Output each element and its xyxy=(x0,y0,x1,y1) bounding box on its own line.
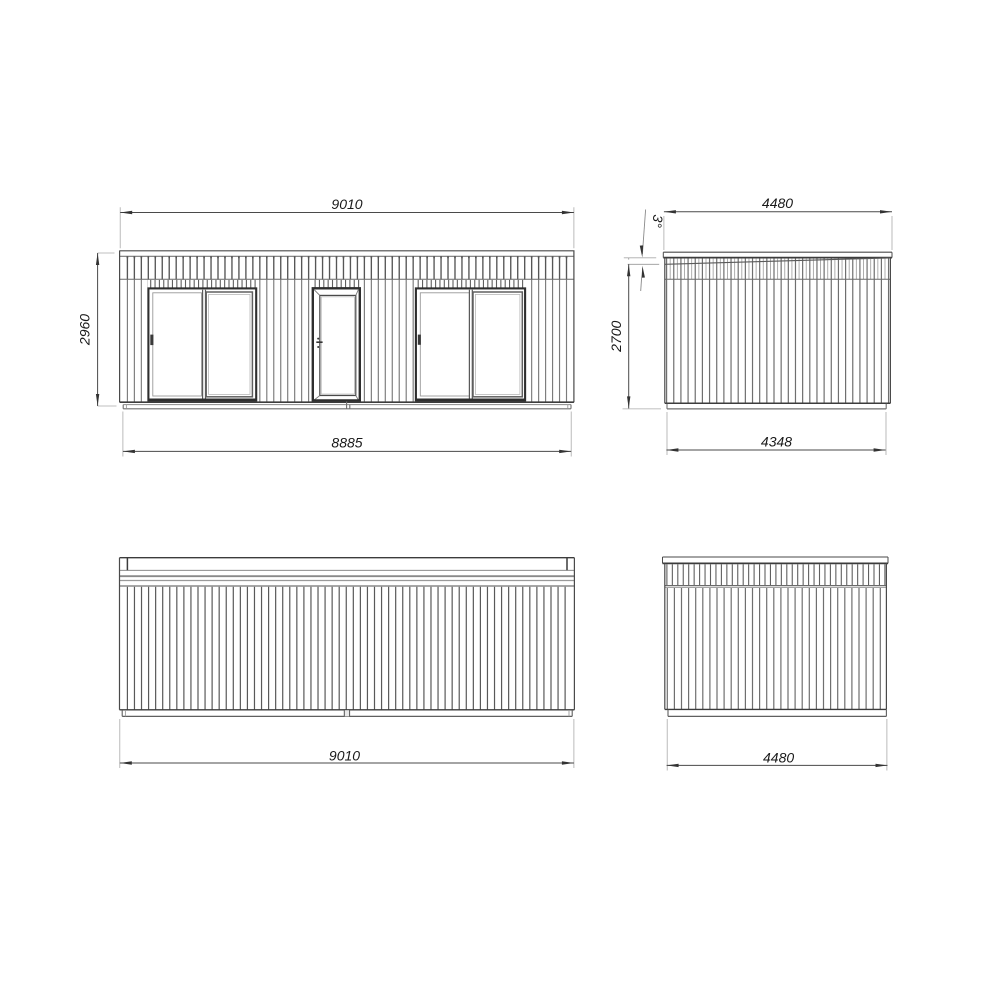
svg-text:4480: 4480 xyxy=(762,195,793,211)
svg-text:8885: 8885 xyxy=(331,435,362,451)
svg-text:2960: 2960 xyxy=(77,314,93,346)
svg-text:9010: 9010 xyxy=(331,196,362,212)
svg-text:4348: 4348 xyxy=(761,434,792,450)
svg-text:2700: 2700 xyxy=(608,321,624,353)
svg-text:3°: 3° xyxy=(649,214,666,229)
svg-text:4480: 4480 xyxy=(763,750,794,766)
svg-text:9010: 9010 xyxy=(329,747,360,763)
